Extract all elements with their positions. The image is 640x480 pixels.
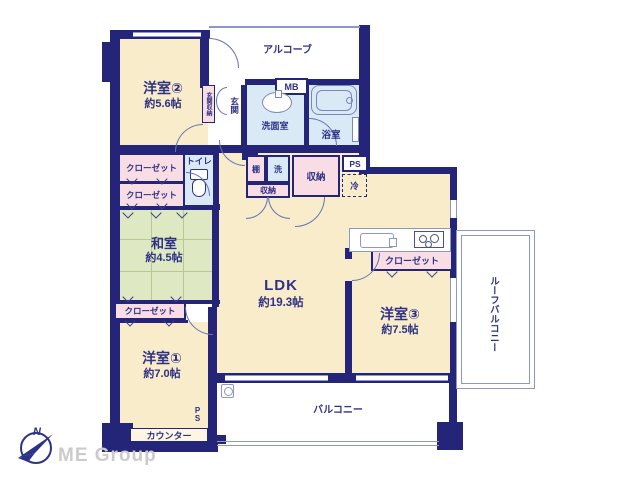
- room-label-washitsu: 和室 約4.5帖: [114, 236, 214, 266]
- room-name: 和室: [114, 236, 214, 252]
- wall: [102, 42, 120, 82]
- room-ldk-right: [362, 174, 457, 380]
- closet-4: クローゼット: [371, 250, 453, 271]
- room-size: 約19.3帖: [206, 296, 356, 310]
- logo-text: ME Group: [58, 444, 168, 468]
- compass-icon: N: [13, 423, 59, 469]
- wall: [359, 167, 457, 174]
- room-name: 洋室③: [350, 306, 450, 324]
- room-size: 約7.5帖: [350, 324, 450, 338]
- senmenshitsu-label: 洗面室: [245, 121, 305, 132]
- shuno-small-box: 収納: [246, 183, 290, 198]
- washer-box: 洗: [266, 155, 290, 183]
- ps-label-bottom: PS: [192, 401, 202, 427]
- kitchen-sink-icon: [360, 233, 394, 248]
- wall: [437, 422, 463, 450]
- wall: [241, 85, 247, 148]
- window: [450, 200, 457, 218]
- toilet-label: トイレ: [184, 156, 214, 167]
- wall: [110, 320, 188, 323]
- ps-box-top: PS: [342, 155, 368, 172]
- stove-icon: [414, 231, 444, 248]
- washbasin-icon: [262, 92, 292, 113]
- shower-panel-icon: [352, 117, 359, 142]
- door-arc: [216, 87, 227, 101]
- compass-n-text: N: [33, 426, 42, 438]
- tatami-grid-line: [114, 271, 214, 272]
- window: [133, 32, 201, 37]
- fridge-box: 冷: [342, 174, 367, 197]
- wall: [449, 383, 457, 425]
- room-size: 約4.5帖: [114, 252, 214, 266]
- room-label-yoshitsu3: 洋室③ 約7.5帖: [350, 306, 450, 337]
- tana-box: 棚: [246, 155, 266, 183]
- window: [356, 375, 448, 381]
- wall: [345, 251, 352, 259]
- room-size: 約7.0帖: [118, 368, 206, 382]
- room-name: 洋室①: [118, 350, 206, 368]
- room-size: 約5.6帖: [118, 98, 208, 112]
- shuno-big-box: 収納: [292, 155, 340, 197]
- genkan-label: 玄関: [229, 88, 240, 122]
- balcony-bottom-rail: [217, 441, 439, 446]
- room-label-yoshitsu2: 洋室② 約5.6帖: [118, 80, 208, 111]
- door-arc: [216, 101, 227, 115]
- alcove-label: アルコーブ: [240, 45, 335, 58]
- roof-balcony-label: ルーフバルコニー: [487, 264, 499, 364]
- door-arc-entrance: [209, 38, 239, 68]
- yokushitsu-label: 浴室: [312, 130, 350, 142]
- floor-plan: クローゼット クローゼット クローゼット クローゼット トイレ 棚 洗 収納 収…: [0, 0, 640, 480]
- alcove-open-edge: [209, 26, 360, 28]
- room-name: LDK: [206, 277, 356, 296]
- room-label-ldk: LDK 約19.3帖: [206, 277, 356, 310]
- closet-3: クローゼット: [114, 302, 186, 320]
- room-label-yoshitsu1: 洋室① 約7.0帖: [118, 350, 206, 381]
- window: [225, 375, 328, 381]
- counter-box: カウンター: [130, 428, 208, 442]
- bathtub-icon: [311, 85, 357, 115]
- balcony-faucet-icon: [221, 384, 234, 398]
- room-name: 洋室②: [118, 80, 208, 98]
- balcony-label: バルコニー: [298, 405, 378, 418]
